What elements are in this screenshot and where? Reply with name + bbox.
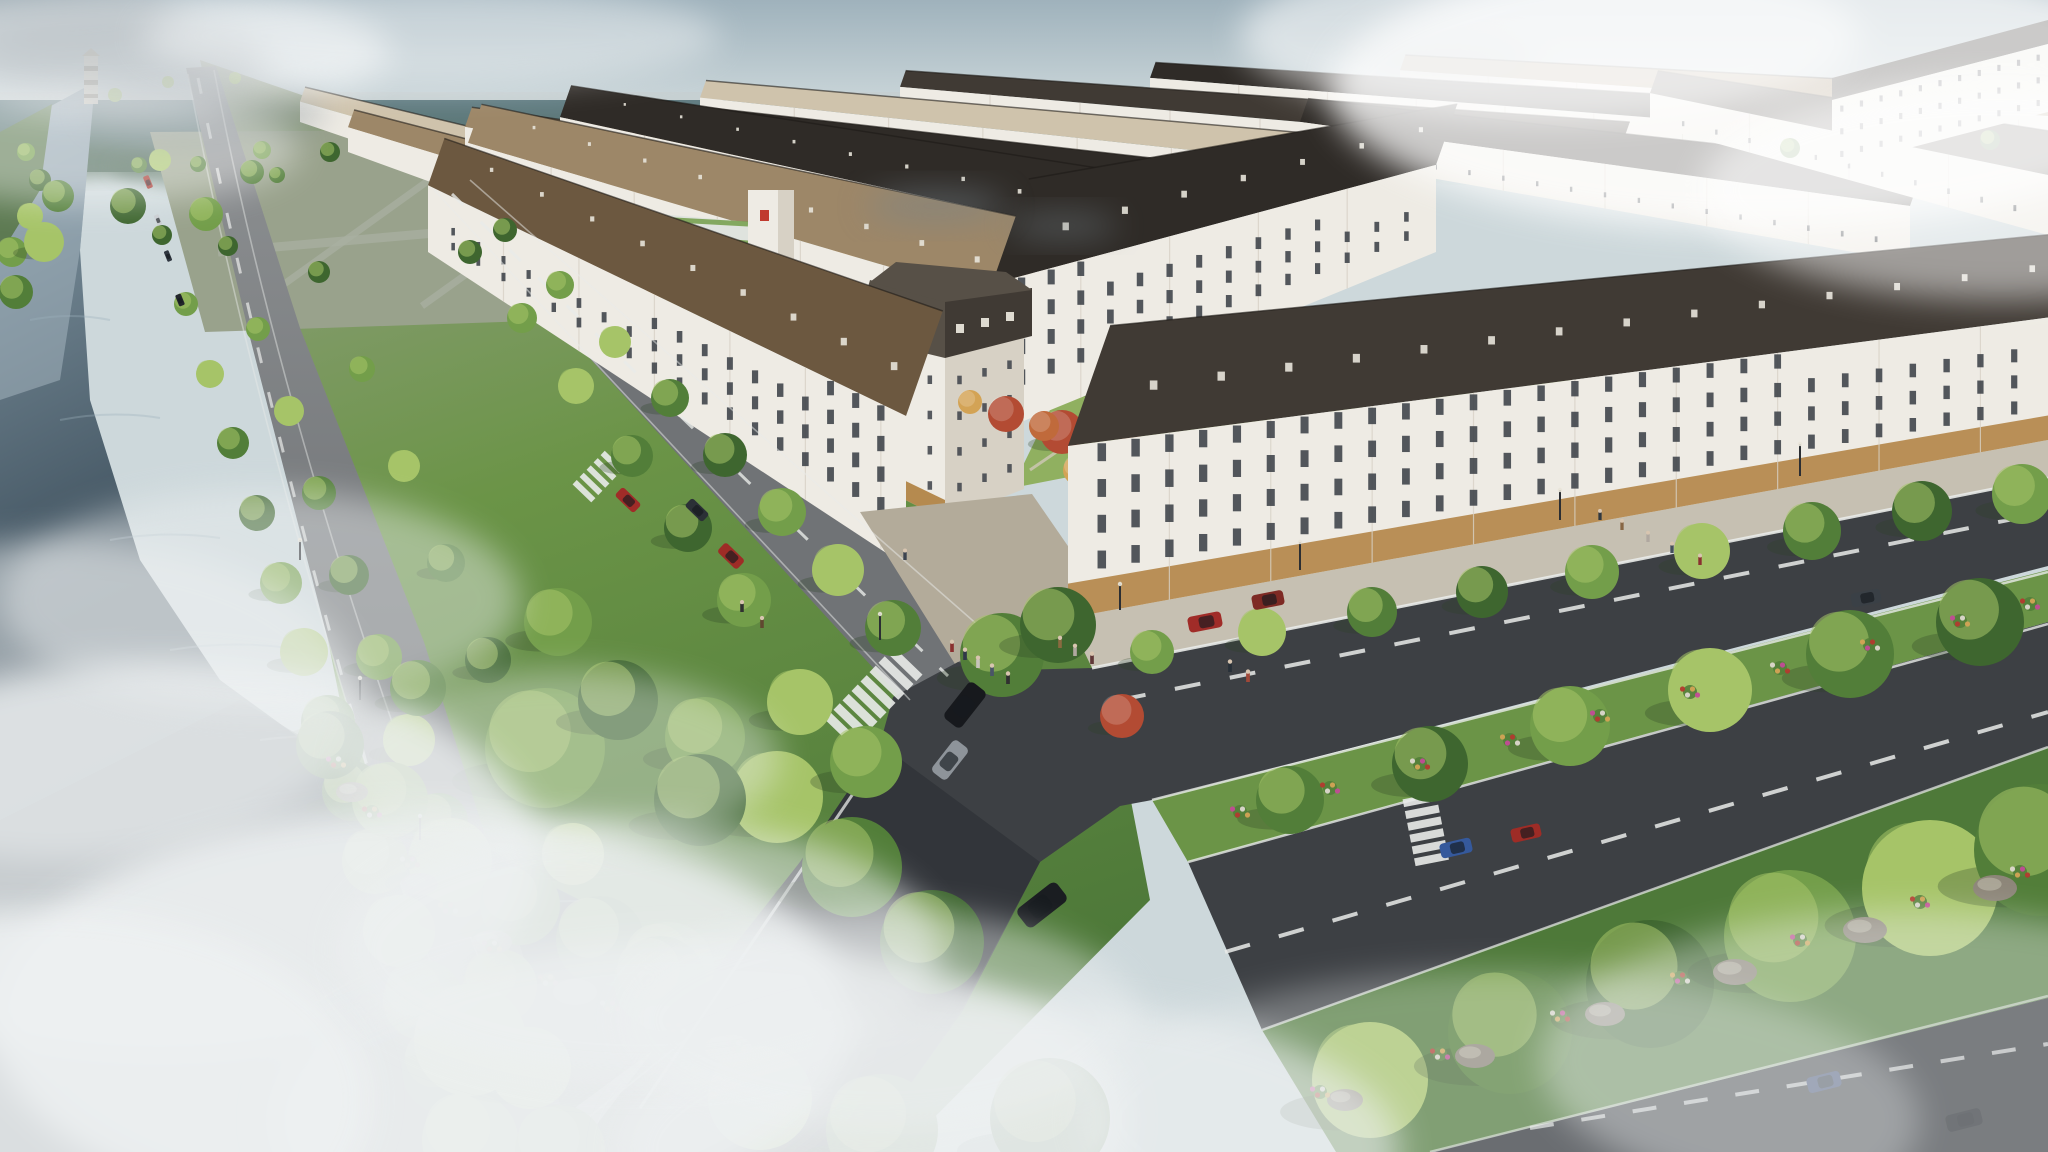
architectural-rendering: [0, 0, 2048, 1152]
scene-canvas: [0, 0, 2048, 1152]
